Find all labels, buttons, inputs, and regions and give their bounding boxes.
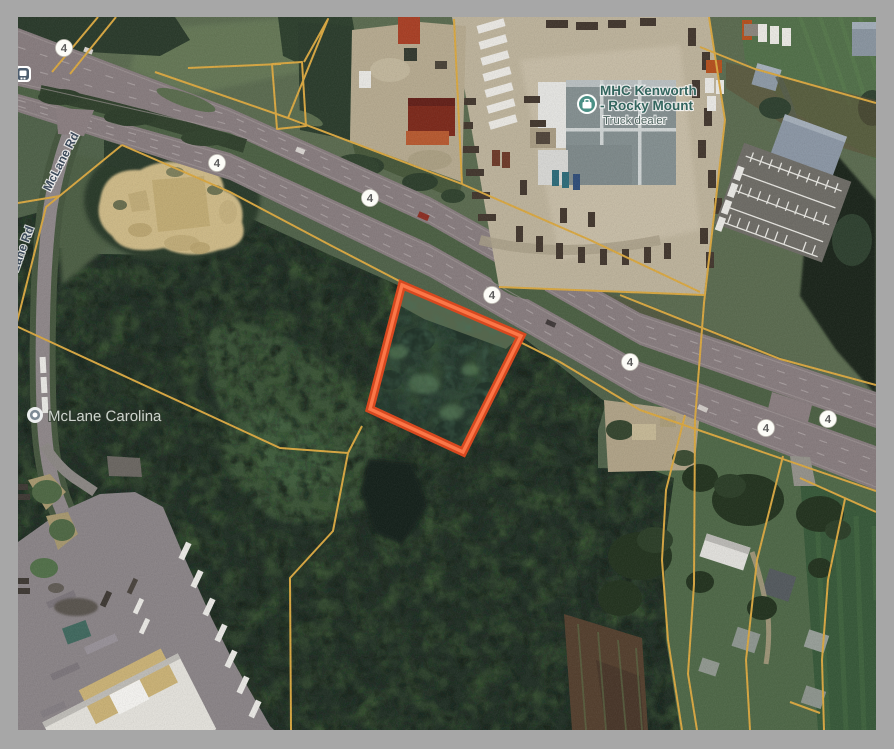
- svg-text:- Rocky Mount: - Rocky Mount: [600, 98, 694, 113]
- svg-text:4: 4: [214, 158, 221, 170]
- svg-text:4: 4: [627, 357, 634, 369]
- svg-text:MHC Kenworth: MHC Kenworth: [600, 83, 697, 98]
- svg-text:4: 4: [61, 43, 68, 55]
- svg-text:McLane Carolina: McLane Carolina: [48, 408, 162, 425]
- svg-text:Truck dealer: Truck dealer: [603, 115, 667, 127]
- svg-text:4: 4: [367, 193, 374, 205]
- svg-text:4: 4: [825, 414, 832, 426]
- svg-text:4: 4: [763, 423, 770, 435]
- svg-text:4: 4: [489, 290, 496, 302]
